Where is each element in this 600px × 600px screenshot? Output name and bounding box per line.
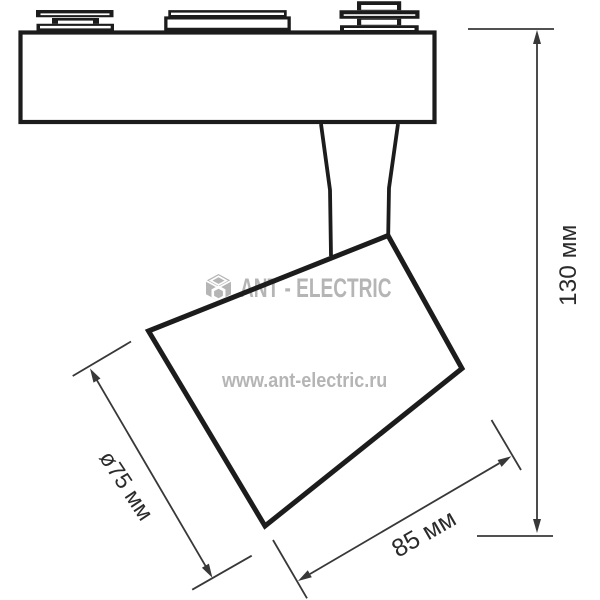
svg-text:www.ant-electric.ru: www.ant-electric.ru	[221, 370, 387, 392]
svg-text:130 мм: 130 мм	[555, 225, 582, 306]
